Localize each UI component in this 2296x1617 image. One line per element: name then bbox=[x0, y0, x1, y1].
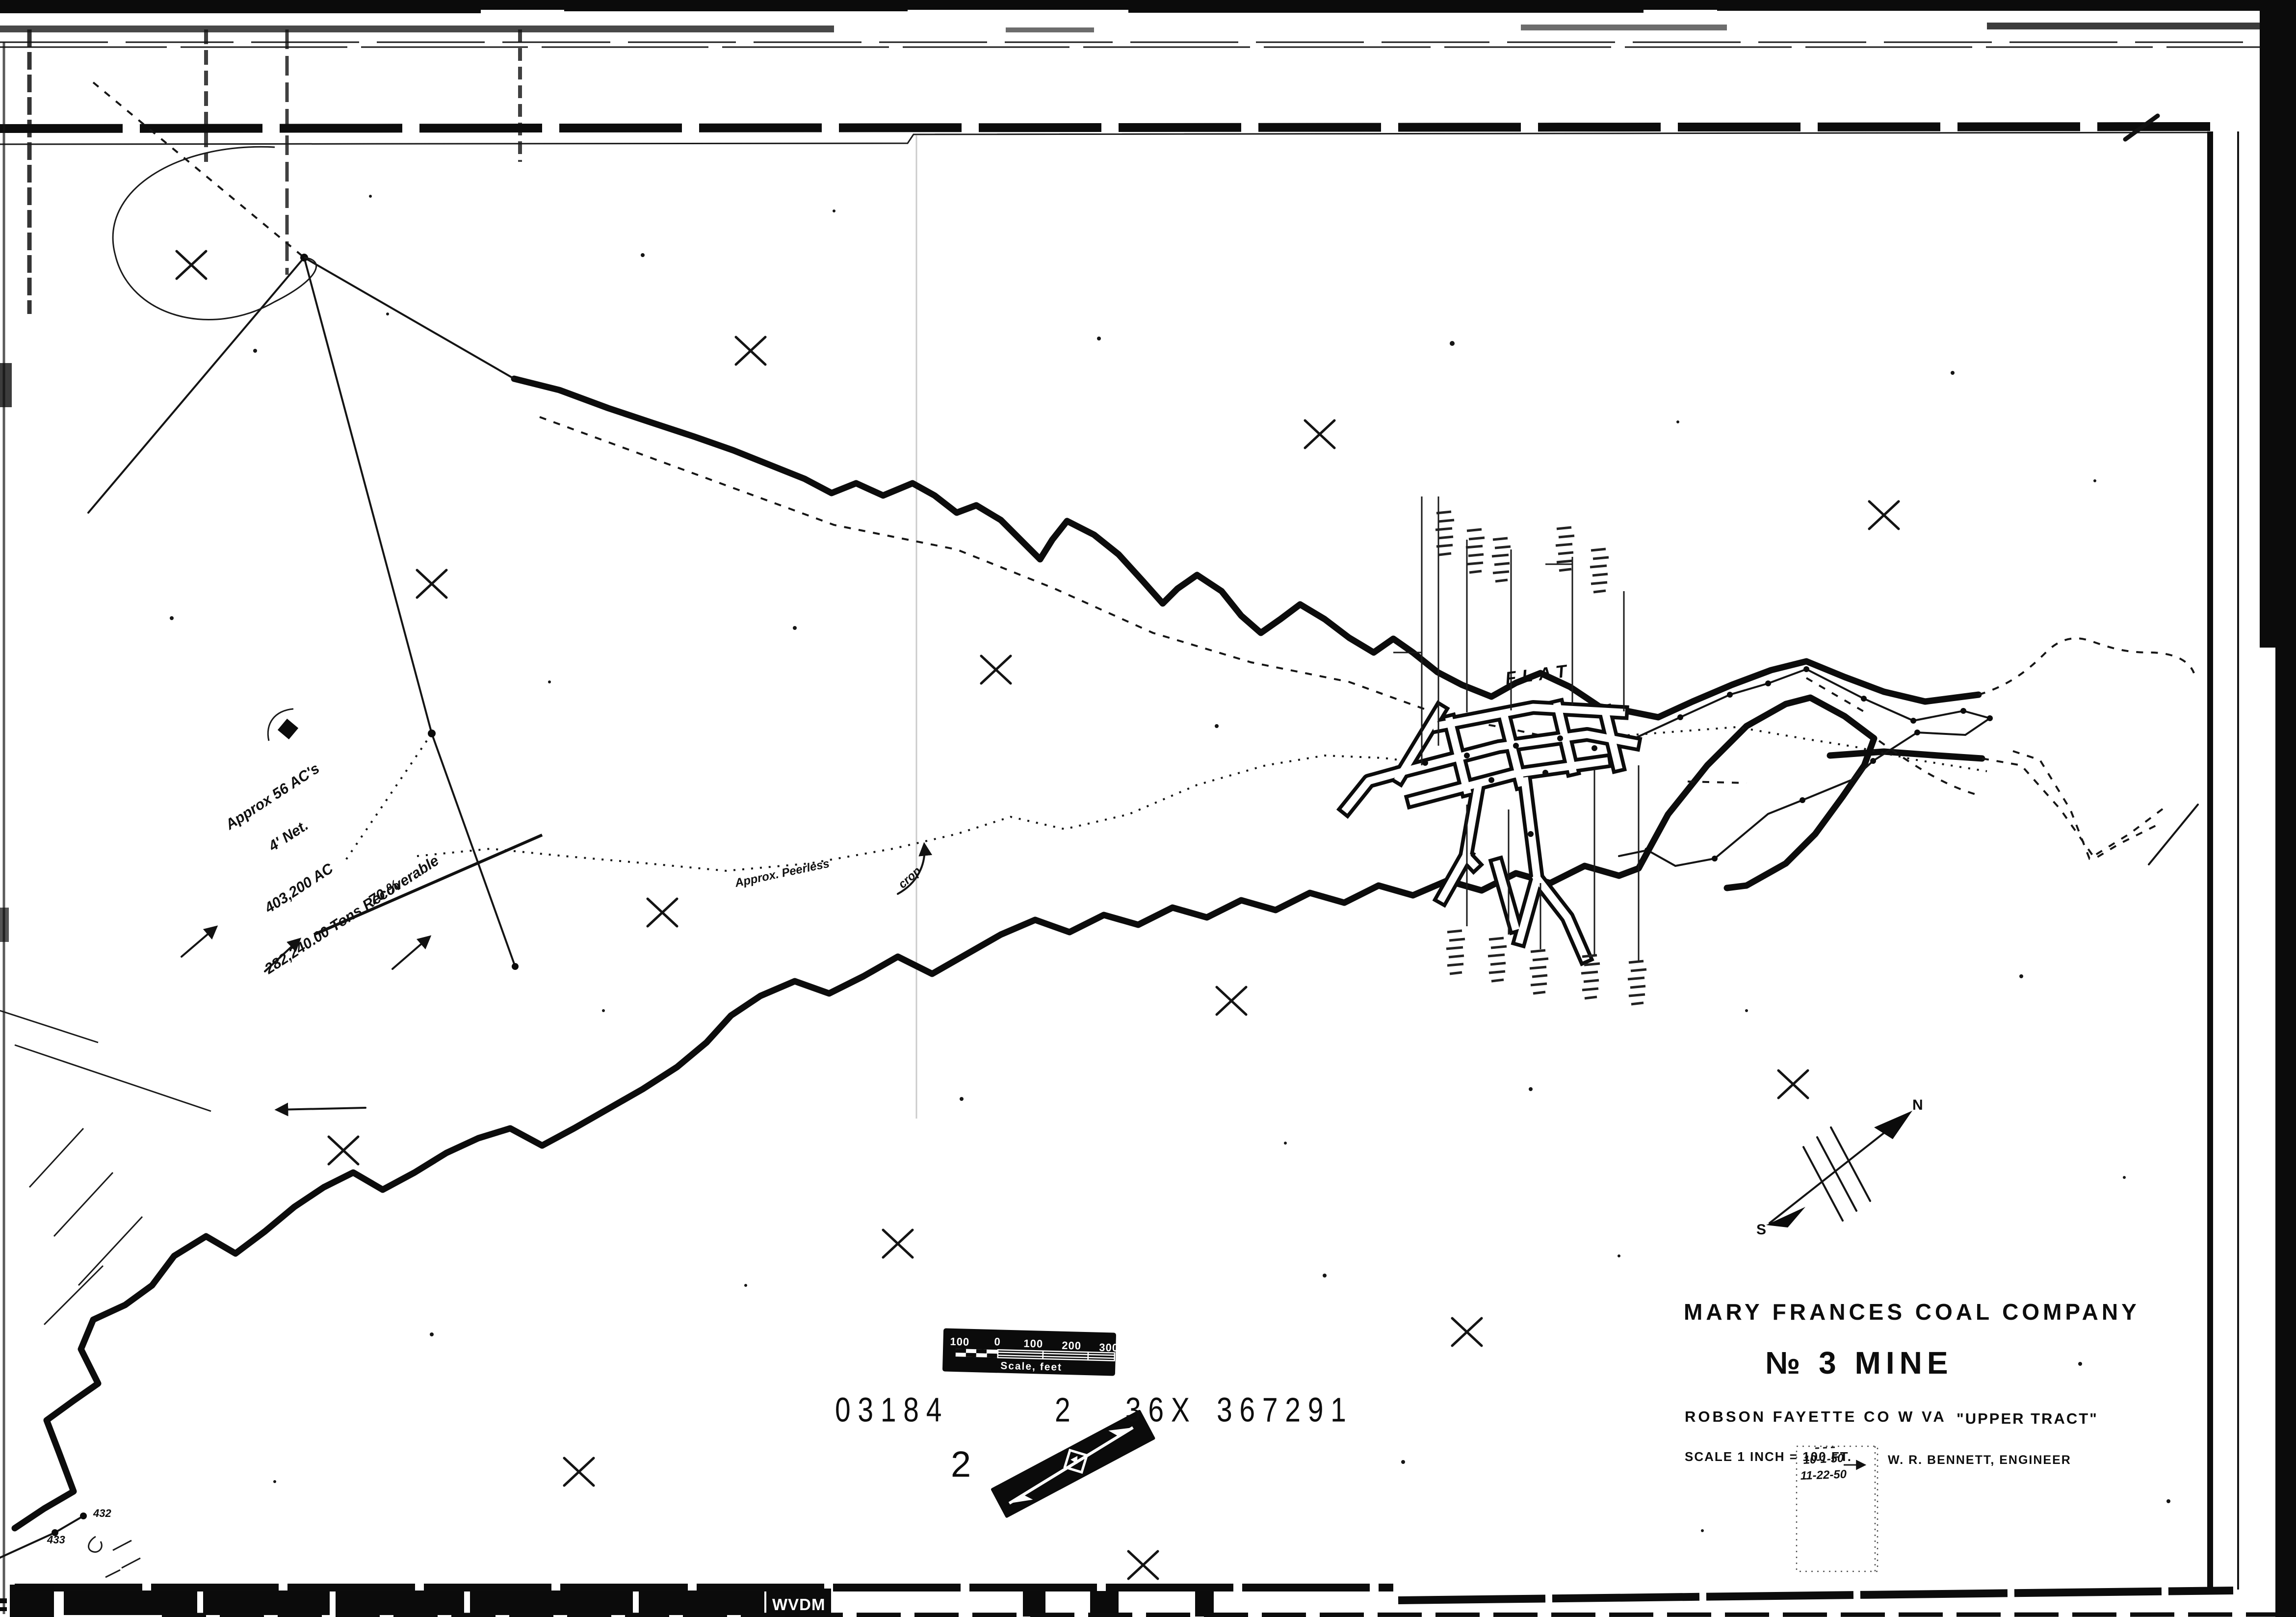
north-south-arrow: N S bbox=[1756, 1097, 1923, 1238]
mine-name: № 3 MINE bbox=[1765, 1345, 1953, 1381]
reserve-note: Approx 56 AC's 4' Net. 403,200 AC 70 % 2… bbox=[222, 760, 542, 978]
reserve-note-line1: Approx 56 AC's bbox=[222, 760, 322, 834]
film-size-code: 36X bbox=[1125, 1391, 1197, 1429]
mine-workings: FLAT bbox=[1347, 496, 1646, 1004]
film-reel-number: 03184 bbox=[835, 1391, 949, 1429]
film-frame-number: 2 bbox=[1055, 1391, 1077, 1429]
scale-bar-label-100R: 100 bbox=[1023, 1337, 1043, 1350]
reserve-note-line2: 4' Net. bbox=[265, 817, 311, 855]
reserve-note-line5: 282,240.00 Tons Recoverable bbox=[261, 853, 442, 978]
stamp-date-1: 10-1-50 bbox=[1803, 1452, 1845, 1467]
north-label: N bbox=[1912, 1097, 1923, 1113]
engineer-name: W. R. BENNETT, ENGINEER bbox=[1888, 1453, 2071, 1467]
survey-traverse-lines bbox=[0, 82, 519, 1577]
scale-bar-label-100L: 100 bbox=[950, 1335, 969, 1348]
scale-bar-label-0: 0 bbox=[994, 1335, 1001, 1348]
film-document-number: 367291 bbox=[1217, 1391, 1354, 1429]
film-agency-code: WVDM bbox=[772, 1595, 825, 1614]
sheet-number: 2 bbox=[951, 1444, 971, 1485]
stamp-date-2: 11-22-50 bbox=[1800, 1468, 1847, 1483]
scale-bar-caption: Scale, feet bbox=[1000, 1360, 1062, 1373]
scale-bar: 100 0 100 200 300 Scale, feet bbox=[942, 1328, 1119, 1376]
crop-note-text2: crop bbox=[896, 864, 924, 891]
station-433-label: 433 bbox=[47, 1534, 65, 1546]
registration-marks bbox=[177, 251, 1899, 1579]
scan-speckles bbox=[170, 195, 2170, 1532]
reserve-note-line3: 403,200 AC bbox=[261, 860, 337, 917]
crop-note-text: Approx. Peerless bbox=[733, 857, 831, 890]
title-block: MARY FRANCES COAL COMPANY № 3 MINE ROBSO… bbox=[1684, 1299, 2140, 1467]
monument-symbol bbox=[268, 709, 298, 741]
tract-name: "UPPER TRACT" bbox=[1957, 1410, 2098, 1427]
company-name: MARY FRANCES COAL COMPANY bbox=[1684, 1299, 2140, 1325]
south-label: S bbox=[1756, 1222, 1766, 1238]
scale-bar-label-200: 200 bbox=[1062, 1339, 1081, 1352]
scan-noise-top bbox=[0, 0, 2296, 314]
station-432-label: 432 bbox=[93, 1507, 111, 1519]
microfilm-strip: WVDM 03184 2 36X 367291 bbox=[0, 1391, 2296, 1617]
date-stamp-box: 10-1-50 11-22-50 bbox=[1797, 1446, 1878, 1571]
map-canvas: FLAT Approx 56 AC's 4' Net. 403,200 AC 7… bbox=[0, 0, 2296, 1617]
peerless-crop-note: Approx. Peerless crop bbox=[733, 857, 924, 891]
mine-location: ROBSON FAYETTE CO W VA bbox=[1685, 1408, 1947, 1425]
scanned-mine-map: FLAT Approx 56 AC's 4' Net. 403,200 AC 7… bbox=[0, 0, 2296, 1617]
